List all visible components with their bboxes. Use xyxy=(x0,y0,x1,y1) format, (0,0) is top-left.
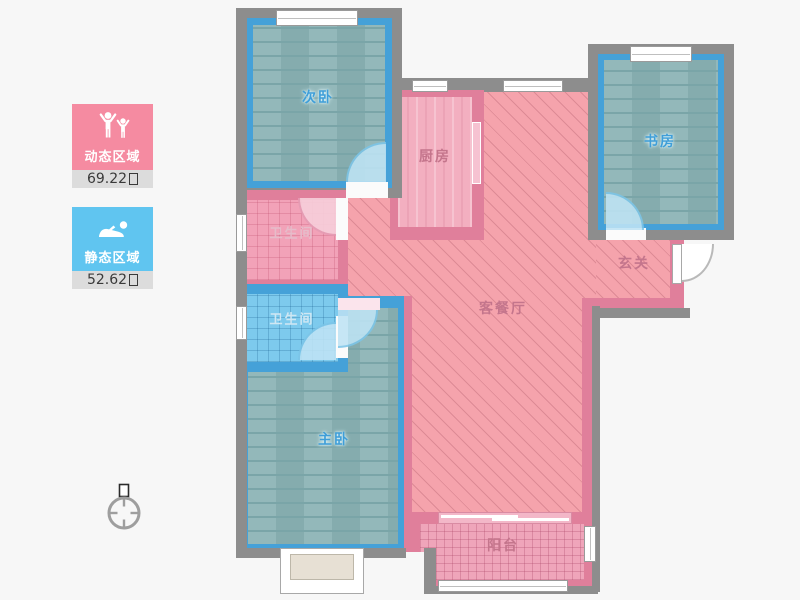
bedroom2-door[interactable] xyxy=(346,182,388,198)
person-lying-icon xyxy=(95,214,131,244)
kitchen-sliding-door[interactable] xyxy=(472,122,481,184)
bedroom2-window xyxy=(276,10,358,26)
wall-living-right xyxy=(582,306,592,512)
legend-static-label: 静态区域 xyxy=(72,247,153,266)
kitchen-label: 厨房 xyxy=(419,146,451,166)
balcony-window-bottom xyxy=(438,580,568,592)
living-window xyxy=(503,80,563,92)
living-dining-label: 客餐厅 xyxy=(479,298,527,318)
kitchen-window xyxy=(412,80,448,92)
static-area-number: 52.62 xyxy=(87,272,127,288)
wall-balcony-notch xyxy=(424,548,436,594)
legend-dynamic-value: 69.22 xyxy=(72,170,153,188)
bedroom2-label: 次卧 xyxy=(302,87,334,107)
entrance-door-arc xyxy=(682,244,714,282)
entrance-door[interactable] xyxy=(672,244,682,284)
floorplan-canvas: 次卧 厨房 书房 卫生间 卫生间 客餐厅 玄关 主卧 阳台 动态区域 xyxy=(0,0,800,600)
dynamic-area-number: 69.22 xyxy=(87,171,127,187)
legend-dynamic-area: 动态区域 xyxy=(72,104,153,170)
people-cheering-icon xyxy=(95,111,131,141)
balcony-window-right xyxy=(584,526,596,562)
master-bedroom-label: 主卧 xyxy=(318,429,350,449)
wall-living-right-outer xyxy=(592,306,600,512)
legend-static-area: 静态区域 xyxy=(72,207,153,271)
master-bay-window-sill xyxy=(290,554,354,580)
balcony-notch xyxy=(406,552,426,594)
foyer-label: 玄关 xyxy=(618,253,650,273)
study-label: 书房 xyxy=(644,131,676,151)
area-unit-missing-glyph xyxy=(129,173,138,185)
legend-static-value: 52.62 xyxy=(72,271,153,289)
legend-dynamic-label: 动态区域 xyxy=(72,146,153,165)
balcony-sliding-door[interactable] xyxy=(438,512,572,524)
north-marker-missing-glyph xyxy=(120,485,129,497)
bathroom1-door[interactable] xyxy=(336,198,348,240)
foyer-area[interactable] xyxy=(596,240,672,306)
balcony-label: 阳台 xyxy=(487,535,519,555)
master-door[interactable] xyxy=(338,298,380,310)
area-unit-missing-glyph xyxy=(129,274,138,286)
bathroom2-window xyxy=(236,306,247,340)
bathroom-master-label: 卫生间 xyxy=(269,309,314,328)
bathroom-shared-label: 卫生间 xyxy=(269,223,314,242)
study-window xyxy=(630,46,692,62)
compass-icon xyxy=(100,483,148,535)
bathroom1-window xyxy=(236,214,247,252)
wall-left-outer xyxy=(236,8,247,558)
